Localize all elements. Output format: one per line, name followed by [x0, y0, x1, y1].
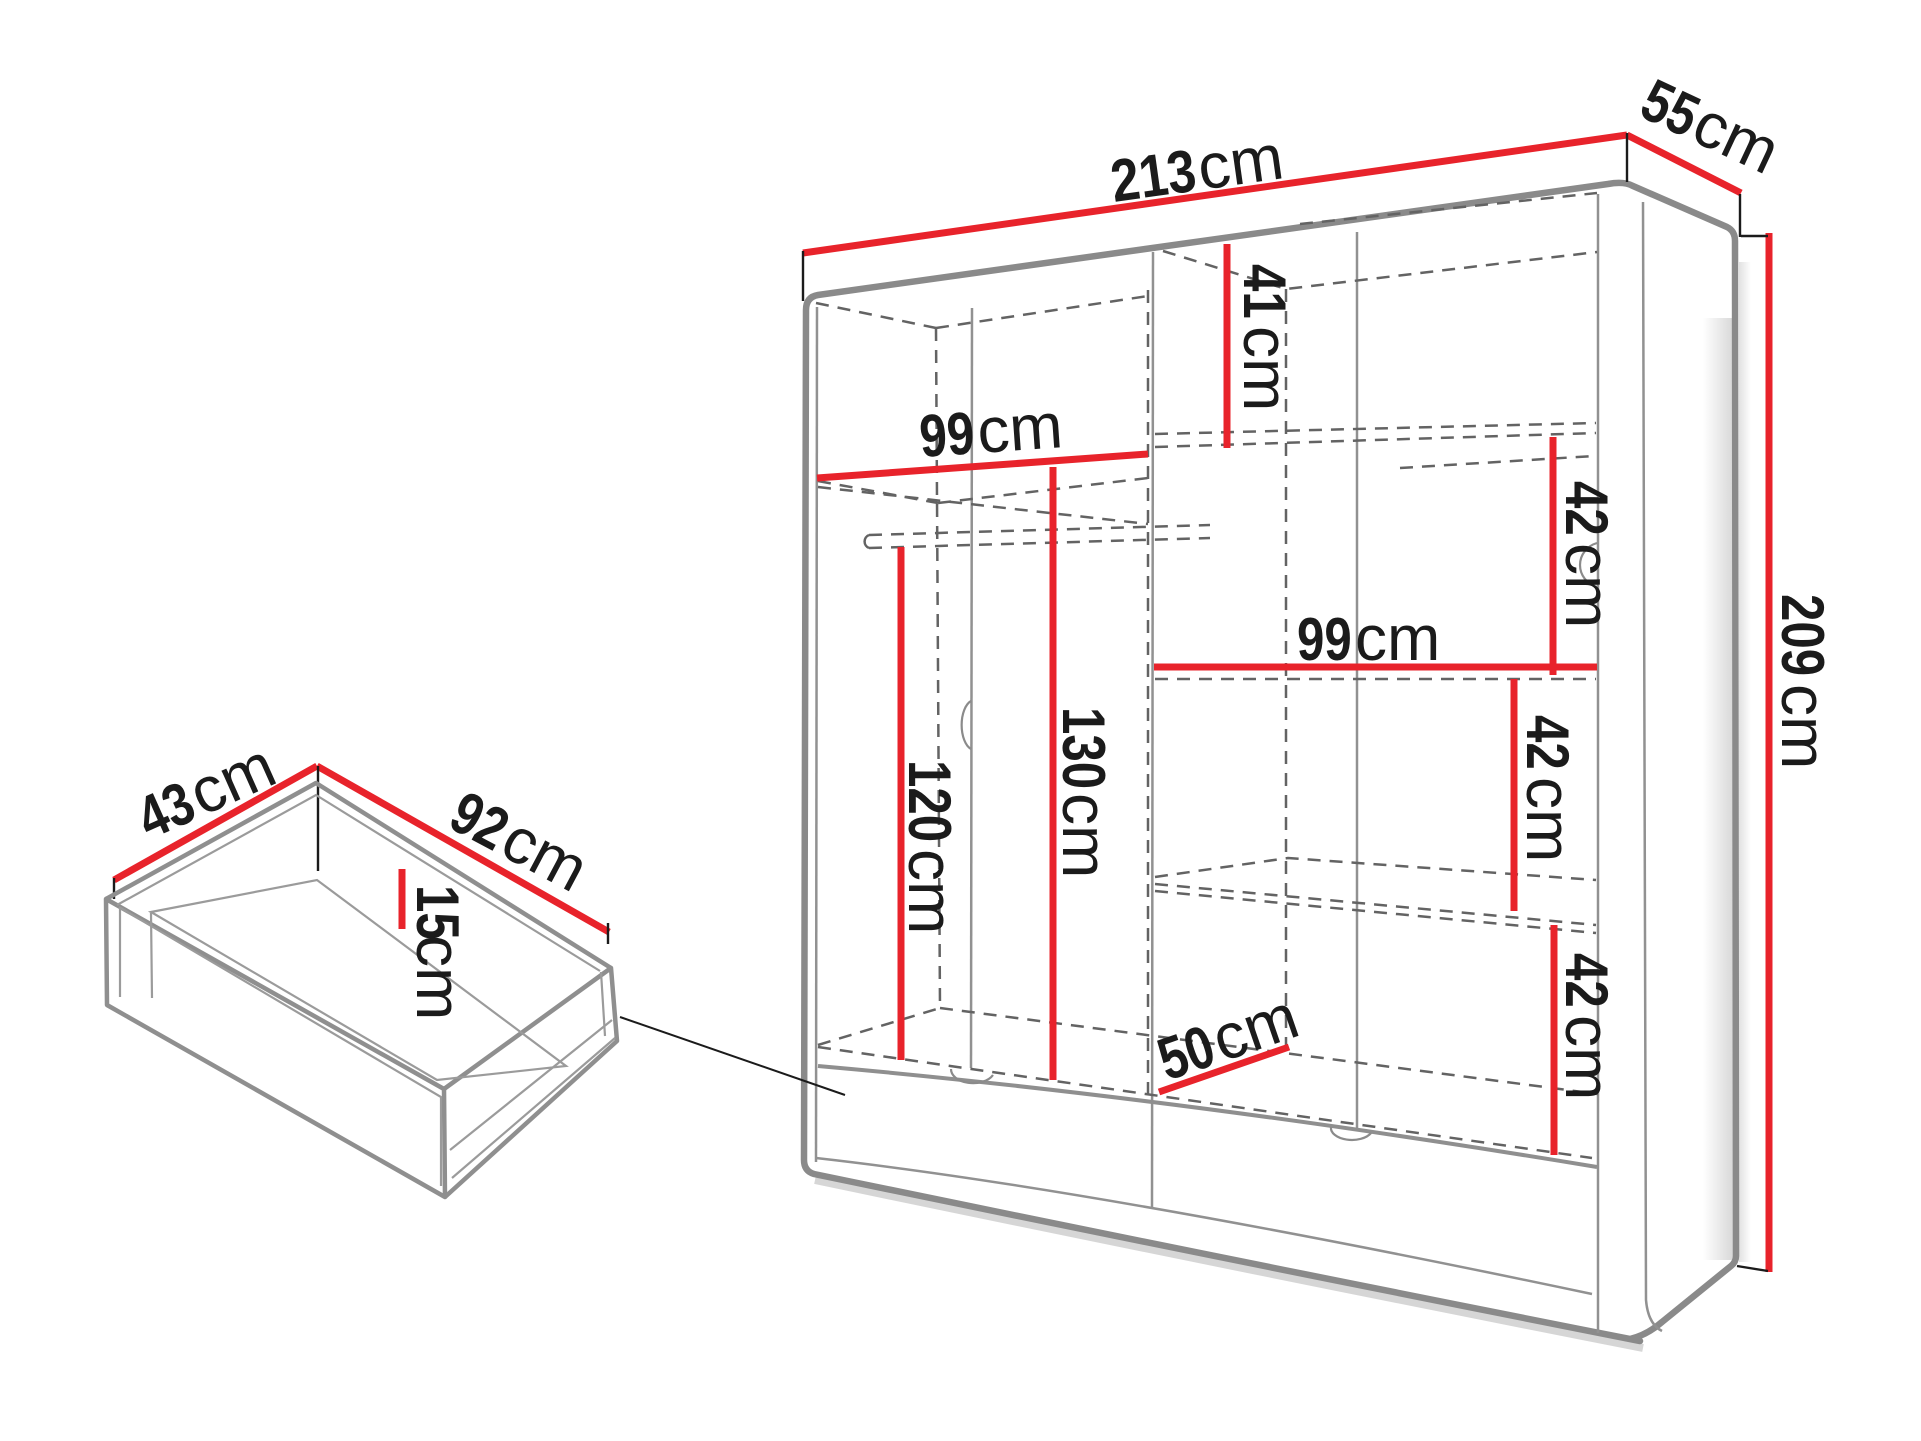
svg-text:42: 42 [1514, 715, 1582, 770]
svg-text:213: 213 [1107, 137, 1201, 215]
svg-text:99: 99 [917, 399, 976, 470]
svg-text:cm: cm [1552, 543, 1624, 628]
svg-text:cm: cm [1552, 1015, 1624, 1100]
svg-text:15: 15 [404, 885, 472, 940]
svg-text:cm: cm [403, 935, 475, 1020]
svg-text:209: 209 [1769, 594, 1837, 676]
svg-text:cm: cm [1049, 793, 1121, 878]
svg-text:120: 120 [896, 760, 964, 842]
svg-text:cm: cm [1768, 684, 1840, 769]
svg-text:42: 42 [1553, 481, 1621, 536]
svg-text:cm: cm [1230, 326, 1302, 411]
svg-text:99: 99 [1297, 605, 1352, 673]
svg-text:cm: cm [1355, 602, 1440, 674]
svg-text:42: 42 [1553, 953, 1621, 1008]
svg-text:130: 130 [1050, 707, 1118, 789]
svg-text:cm: cm [1193, 120, 1288, 203]
svg-text:cm: cm [895, 849, 967, 934]
svg-text:cm: cm [1513, 777, 1585, 862]
svg-text:41: 41 [1231, 264, 1299, 319]
svg-text:cm: cm [975, 389, 1065, 467]
